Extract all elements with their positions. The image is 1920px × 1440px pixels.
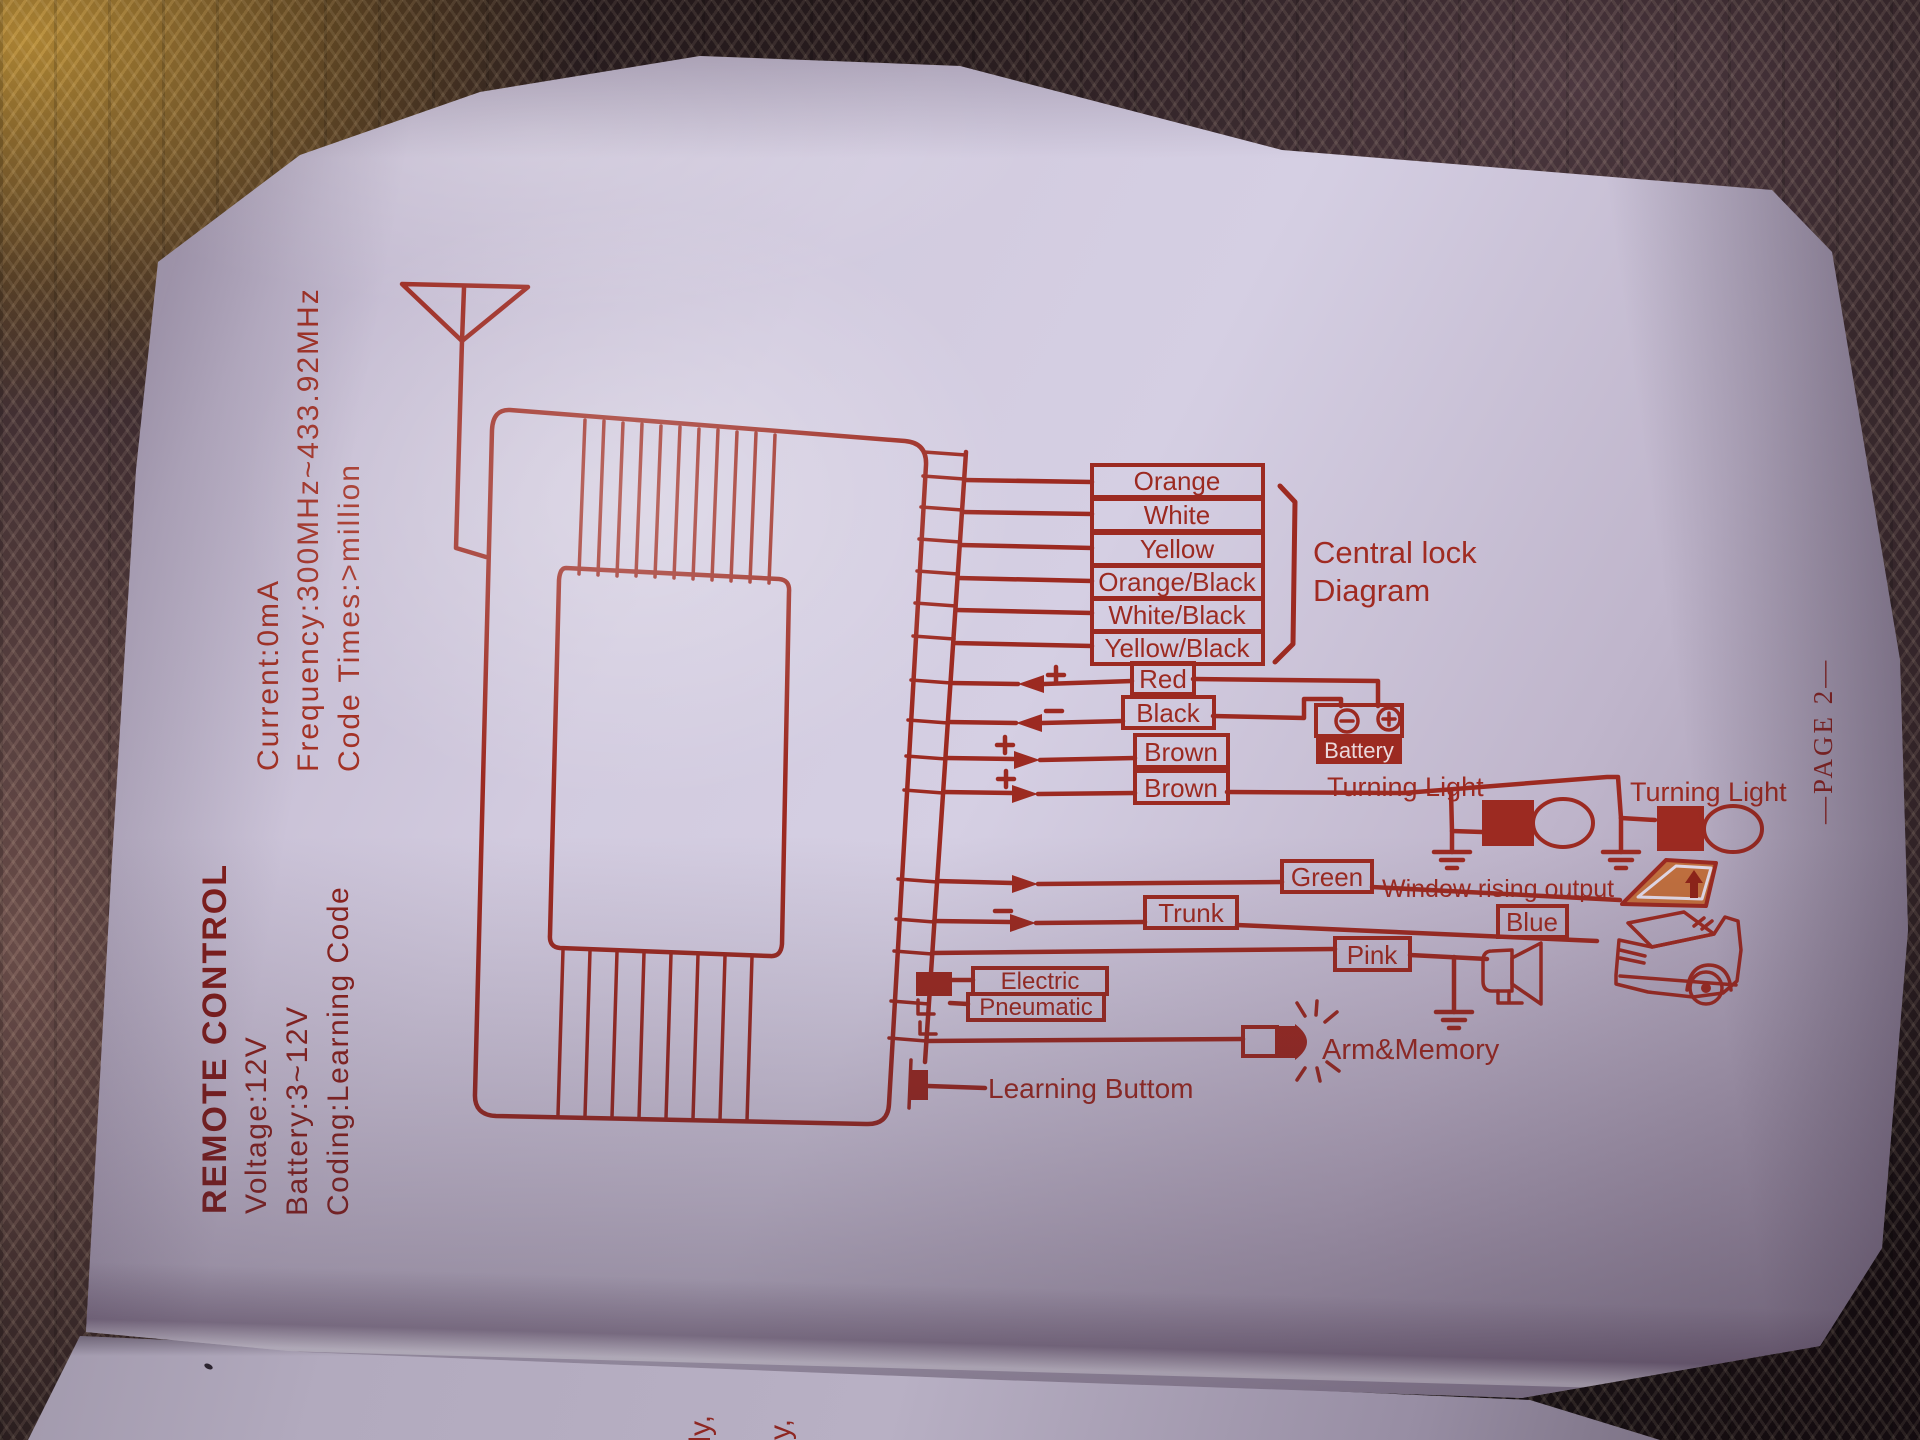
svg-text:Black: Black	[1136, 698, 1201, 728]
arm-memory-wire	[926, 1039, 1243, 1041]
wire-label-black: Black	[1123, 697, 1214, 728]
brown-wire-1	[946, 737, 1135, 769]
spec-frequency: Frequency:300MHz~433.92MHz	[292, 287, 326, 772]
spec-coding: Coding:Learning Code	[322, 886, 356, 1216]
svg-text:White: White	[1144, 500, 1210, 530]
svg-text:Pink: Pink	[1347, 940, 1399, 970]
wire-label-orange-black: Orange/Black	[1092, 566, 1263, 598]
spec-code-times: Code Times:>million	[333, 463, 367, 772]
car-icon	[1616, 912, 1741, 1004]
plus-sign	[997, 737, 1013, 753]
learning-button-label: Learning Buttom	[988, 1073, 1193, 1104]
svg-text:Orange/Black: Orange/Black	[1098, 567, 1257, 597]
window-switch-icon	[1622, 860, 1716, 906]
svg-text:Pneumatic: Pneumatic	[979, 994, 1092, 1021]
arrow-left-icon	[1018, 675, 1044, 693]
learning-button-wire	[909, 1060, 985, 1108]
turning-light-label-1: Turning Light	[1327, 772, 1484, 802]
svg-text:Blue: Blue	[1506, 907, 1558, 937]
arrow-left-icon	[1016, 714, 1042, 732]
arm-memory-label: Arm&Memory	[1322, 1034, 1500, 1066]
wire-label-yellow: Yellow	[1092, 533, 1263, 565]
svg-text:Red: Red	[1139, 664, 1187, 694]
wire-label-yellow-black: Yellow/Black	[1092, 632, 1263, 664]
central-lock-caption: Central lock	[1313, 535, 1477, 570]
spec-voltage: Voltage:12V	[240, 1036, 274, 1214]
under-page-text-fragment: ally,	[764, 1419, 798, 1440]
plus-sign	[1048, 667, 1064, 683]
manual-page: Orange White Yellow Orange/Black White/B…	[0, 0, 1920, 1440]
central-lock-caption: Diagram	[1313, 573, 1430, 608]
page-number: —PAGE 2—	[1808, 658, 1839, 824]
wiring-diagram: Orange White Yellow Orange/Black White/B…	[0, 0, 1920, 1440]
battery-icon: Battery	[1316, 705, 1402, 764]
wire-label-blue: Blue	[1498, 906, 1567, 937]
dust-speck	[203, 1362, 213, 1370]
svg-text:Yellow: Yellow	[1140, 534, 1214, 564]
spec-current: Current:0mA	[252, 579, 286, 771]
arrow-right-icon	[1012, 875, 1038, 893]
svg-text:Green: Green	[1291, 862, 1363, 892]
ground-icon	[1434, 852, 1470, 868]
wire-label-trunk: Trunk	[1145, 897, 1237, 928]
spec-battery: Battery:3~12V	[281, 1006, 315, 1216]
svg-text:Electric: Electric	[1001, 968, 1080, 995]
ground-icon	[1436, 1012, 1472, 1028]
wire-label-brown-2: Brown	[1135, 771, 1228, 803]
under-page-text-fragment: ally,	[684, 1415, 718, 1440]
wire-label-pink: Pink	[1335, 938, 1410, 970]
battery-plus-terminal	[1383, 713, 1395, 725]
photo-of-manual-page: y, ally, ally,	[0, 0, 1920, 1440]
wire-label-white: White	[1092, 499, 1263, 531]
antenna-icon	[402, 284, 528, 557]
turn-lamp-icon	[1482, 799, 1593, 847]
window-rising-output-label: Window rising output	[1382, 875, 1614, 903]
turn-lamp-icon	[1657, 806, 1762, 852]
wire-label-orange: Orange	[1092, 465, 1263, 497]
plus-sign	[998, 771, 1014, 787]
central-lock-wires	[954, 480, 1092, 646]
remote-control-title: REMOTE CONTROL	[196, 863, 235, 1214]
svg-text:Brown: Brown	[1144, 737, 1218, 767]
svg-text:Orange: Orange	[1134, 466, 1221, 496]
svg-text:Yellow/Black: Yellow/Black	[1104, 633, 1250, 663]
arrow-right-icon	[1012, 785, 1038, 803]
wire-label-brown-1: Brown	[1135, 735, 1228, 767]
wire-label-pneumatic: Pneumatic	[968, 994, 1104, 1021]
unit-inner-box	[550, 568, 789, 956]
arrow-right-icon	[1014, 751, 1040, 769]
wire-label-red: Red	[1132, 663, 1194, 694]
wire-label-electric: Electric	[973, 968, 1107, 995]
wire-label-white-black: White/Black	[1092, 599, 1263, 631]
battery-label: Battery	[1324, 738, 1394, 763]
control-unit-box	[475, 410, 926, 1124]
wire-label-green: Green	[1282, 861, 1372, 892]
ground-icon	[1603, 852, 1639, 868]
svg-text:White/Black: White/Black	[1108, 600, 1246, 630]
siren-icon	[1483, 943, 1541, 1004]
brown-wire-2	[943, 771, 1655, 852]
central-lock-brace	[1275, 486, 1295, 662]
svg-text:Trunk: Trunk	[1158, 898, 1224, 928]
unit-hatch-bottom	[558, 950, 752, 1121]
svg-text:Brown: Brown	[1144, 773, 1218, 803]
unit-hatch-top	[579, 420, 775, 583]
arrow-right-icon	[1010, 914, 1036, 932]
turning-light-label-2: Turning Light	[1630, 777, 1787, 807]
